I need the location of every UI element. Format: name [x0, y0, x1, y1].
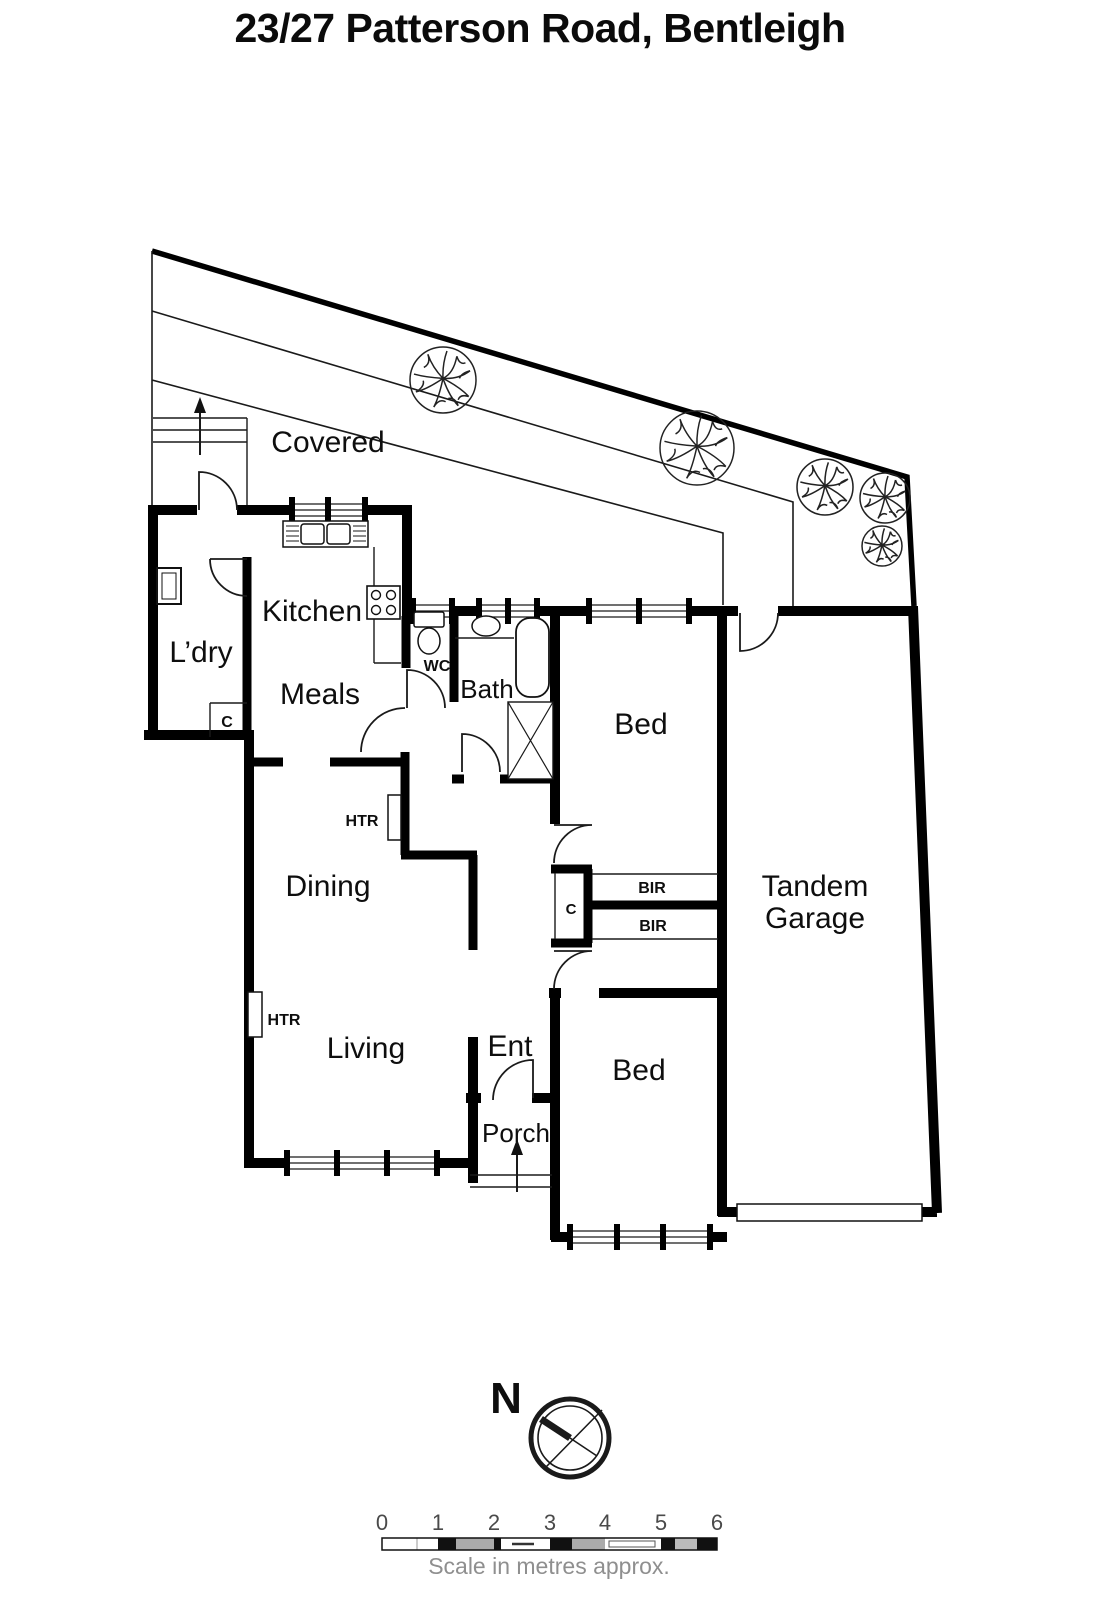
label-bed-front: Bed [614, 708, 667, 741]
steps-arrow [194, 397, 206, 455]
label-living: Living [327, 1032, 405, 1065]
scale-tick: 3 [544, 1510, 556, 1535]
stove-cooktop [367, 586, 400, 619]
garage-roller-door [737, 1204, 922, 1221]
floorplan-canvas: 23/27 Patterson Road, Bentleigh [0, 0, 1103, 1600]
label-laundry: L’dry [169, 636, 232, 669]
scale-tick: 6 [711, 1510, 723, 1535]
room-labels: Covered L’dry Kitchen Meals WC Bath Bed … [169, 426, 868, 1148]
tree-icon [410, 347, 476, 413]
label-garage-line1: Tandem [762, 870, 869, 903]
label-meals: Meals [280, 678, 360, 711]
label-htr-living: HTR [268, 1012, 301, 1029]
page-title: 23/27 Patterson Road, Bentleigh [234, 5, 845, 51]
label-kitchen: Kitchen [262, 595, 362, 628]
north-compass-icon: N [490, 1374, 609, 1477]
laundry-trough [157, 568, 181, 604]
scale-tick: 5 [655, 1510, 667, 1535]
boundary-thick [152, 251, 914, 606]
toilet [414, 612, 444, 654]
floorplan-page: 23/27 Patterson Road, Bentleigh [0, 0, 1103, 1600]
label-entry: Ent [487, 1030, 533, 1063]
scale-tick: 2 [488, 1510, 500, 1535]
scale-bar: 0 1 2 3 4 5 6 Scale in metres approx. [376, 1510, 723, 1579]
label-htr-dining: HTR [346, 813, 379, 830]
shower [508, 702, 553, 779]
label-wc: WC [424, 658, 451, 675]
tree-icon [860, 473, 910, 523]
heater-unit-living [248, 992, 262, 1037]
scale-caption: Scale in metres approx. [428, 1553, 670, 1579]
label-garage-line2: Garage [765, 902, 865, 935]
scale-tick: 1 [432, 1510, 444, 1535]
bathtub [516, 618, 549, 697]
label-bed-rear: Bed [612, 1054, 665, 1087]
door-swings [199, 472, 778, 1100]
label-porch: Porch [482, 1118, 550, 1148]
heater-unit-dining [388, 795, 401, 840]
scale-tick: 0 [376, 1510, 388, 1535]
bath-basin [472, 616, 500, 636]
label-covered: Covered [271, 426, 384, 459]
boundary-thin [152, 251, 793, 607]
label-dining: Dining [285, 870, 370, 903]
kitchen-sink [283, 521, 368, 547]
tree-icon [797, 459, 853, 515]
north-label: N [490, 1374, 522, 1423]
scale-tick: 4 [599, 1510, 611, 1535]
label-bir-rear: BIR [639, 918, 667, 935]
label-closet-hall: C [566, 901, 577, 918]
label-bir-front: BIR [638, 880, 666, 897]
label-bath: Bath [460, 674, 514, 704]
tree-icon [862, 526, 902, 566]
label-closet-laundry: C [221, 714, 233, 731]
